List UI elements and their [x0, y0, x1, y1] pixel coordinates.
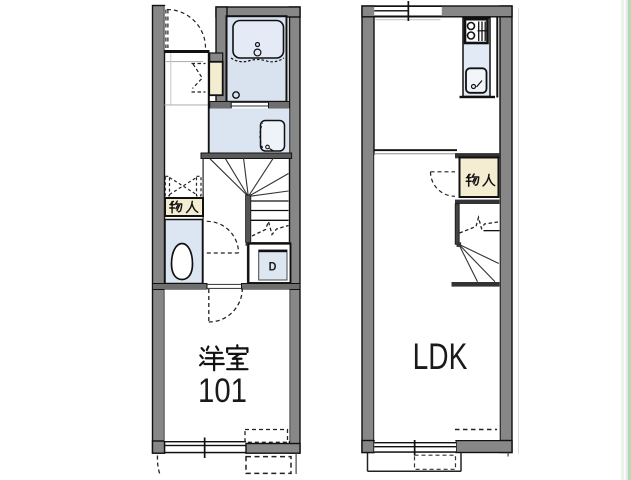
- svg-text:D: D: [269, 261, 277, 274]
- svg-text:LDK: LDK: [413, 335, 468, 377]
- svg-text:101: 101: [198, 371, 247, 410]
